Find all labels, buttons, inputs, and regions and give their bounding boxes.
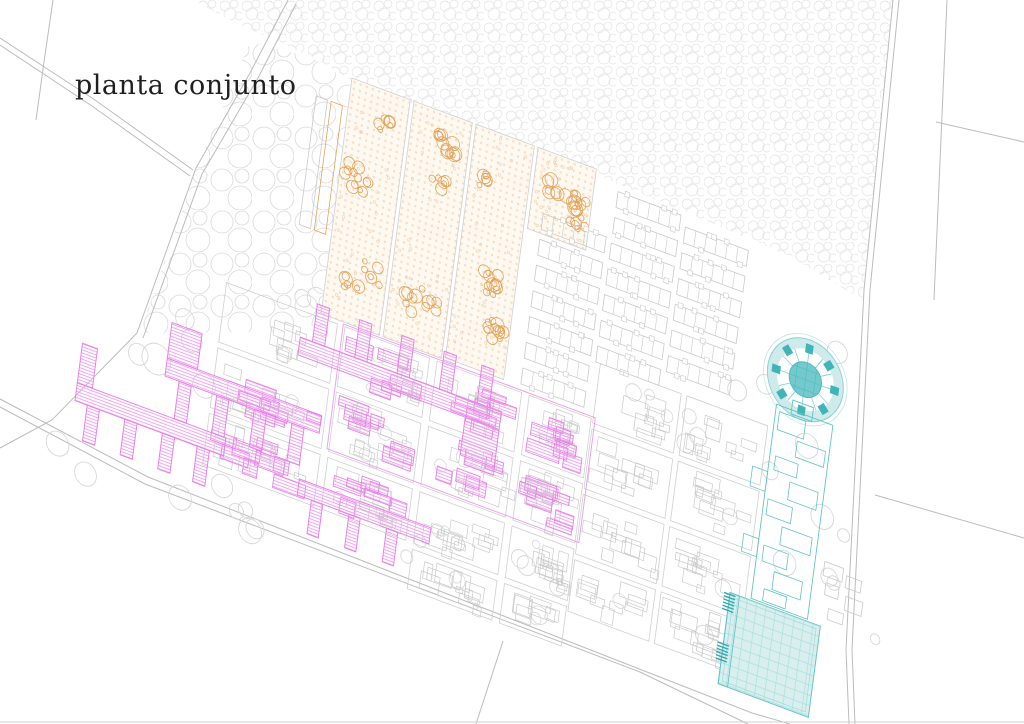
magenta-housing-block [513, 461, 583, 545]
tree [870, 632, 881, 646]
house [844, 596, 863, 616]
road [0, 45, 190, 176]
magenta-housing-block [521, 395, 591, 478]
civic-wing [741, 533, 758, 556]
rowhouse-bar [605, 266, 671, 311]
rowhouse-bar [680, 250, 746, 295]
tree [837, 527, 851, 544]
civic-building [780, 527, 812, 556]
civic-building [762, 545, 789, 570]
civic-wing [750, 466, 768, 491]
city-block [679, 396, 768, 486]
road [875, 495, 1024, 538]
east-building-cluster [818, 561, 867, 631]
rowhouse-bar [666, 353, 732, 398]
rowhouse-bar [612, 214, 678, 259]
tree [510, 547, 529, 571]
drawing-canvas: planta conjunto [0, 0, 1024, 724]
site-plan-drawing [0, 0, 1024, 724]
house [827, 609, 843, 625]
magenta-housing-block [329, 392, 421, 483]
gridded-court [712, 591, 820, 718]
rowhouse-bar [524, 339, 590, 384]
tree [73, 459, 98, 490]
page-title: planta conjunto [75, 70, 296, 101]
city-block [407, 549, 497, 622]
city-block [568, 560, 656, 642]
city-block [584, 429, 673, 519]
tree [127, 340, 149, 368]
rowhouse-bar [531, 288, 597, 333]
tree [794, 430, 820, 462]
road [934, 0, 947, 300]
road [936, 122, 1024, 142]
house [823, 561, 844, 582]
road [0, 38, 193, 170]
civic-building [788, 482, 819, 510]
tree [689, 425, 708, 449]
tree [772, 547, 798, 579]
road [36, 0, 53, 120]
house [845, 576, 862, 593]
city-block [575, 494, 665, 584]
rowhouse-bar [534, 262, 600, 307]
road [476, 641, 503, 724]
civic-building [766, 499, 793, 524]
tree [625, 381, 643, 403]
city-block [671, 461, 760, 550]
